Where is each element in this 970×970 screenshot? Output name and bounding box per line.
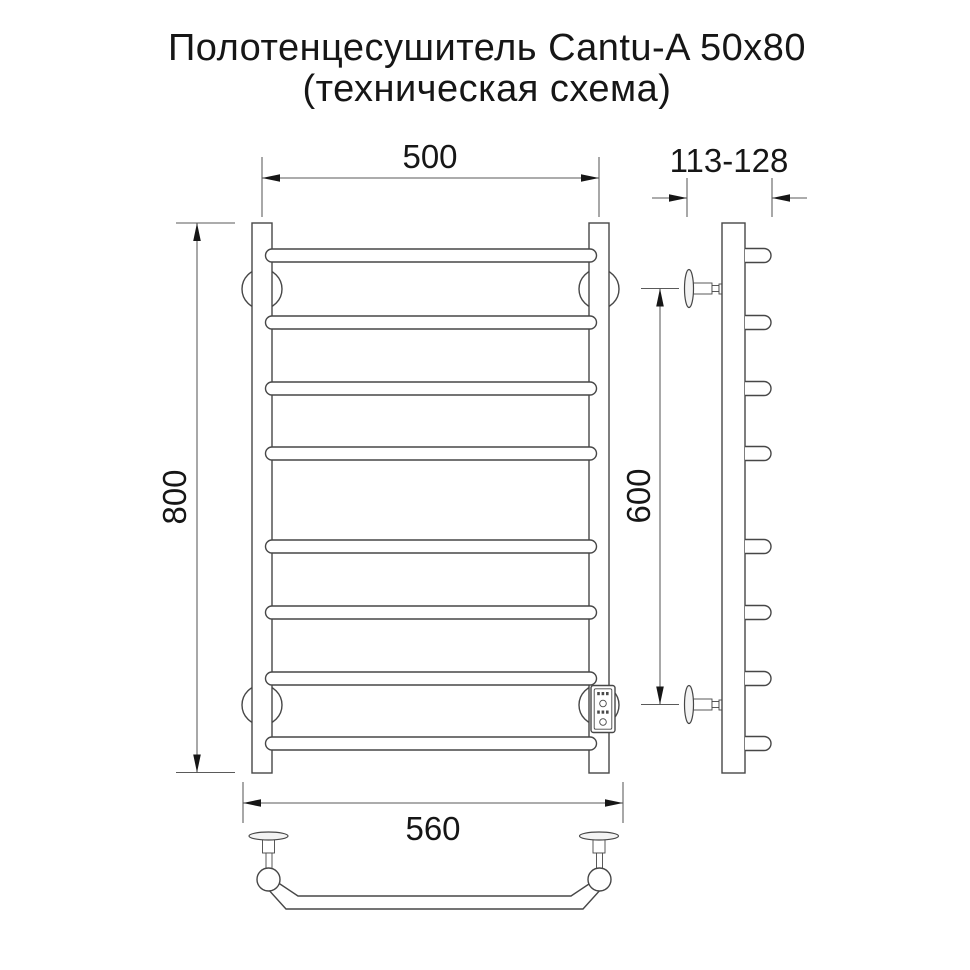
drawing-title: Полотенцесушитель Cantu-A 50x80 (техниче… [168,27,806,110]
rung-5 [266,540,597,553]
rung-end-4 [745,447,771,461]
power-button-icon [600,700,607,707]
rung-8 [266,737,597,750]
rung-end-1 [745,249,771,263]
mode-button-icon [600,719,607,726]
dim-label-height: 800 [156,469,193,524]
rung-2 [266,316,597,329]
rung-3 [266,382,597,395]
front-view [242,223,619,773]
wall-fastener-bottom [685,686,724,724]
wall-flange-top [685,270,694,308]
rung-end-8 [745,737,771,751]
technical-drawing: Полотенцесушитель Cantu-A 50x80 (техниче… [0,0,970,970]
rung-end-3 [745,382,771,396]
dim-label-mount-height: 600 [620,468,657,523]
rung-end-6 [745,606,771,620]
dim-mount-height: 600 [620,289,679,705]
rung-1 [266,249,597,262]
rung-end-5 [745,540,771,554]
dim-width-bottom: 560 [243,782,623,847]
technical-drawing-page: Полотенцесушитель Cantu-A 50x80 (техниче… [0,0,970,970]
rung-end-7 [745,672,771,686]
ball-joint-right [588,868,611,891]
dim-label-width-bottom: 560 [405,810,460,847]
wall-flange-plan-right [580,832,619,840]
wall-fastener-top [685,270,724,308]
ball-joint-left [257,868,280,891]
side-view [685,223,772,773]
dim-label-mount-depth: 113-128 [670,142,789,179]
wall-flange-plan-left [249,832,288,840]
control-panel [591,686,615,733]
dim-label-width-top: 500 [402,138,457,175]
panel-label-marks-bottom [597,711,608,714]
wall-fastener-plan-right [580,832,619,891]
panel-label-marks-top [597,692,608,695]
dim-width-top: 500 [262,138,599,217]
dim-height: 800 [156,223,235,773]
wall-fastener-plan-left [249,832,288,891]
title-line-2: (техническая схема) [303,68,672,110]
dim-mount-depth: 113-128 [652,142,807,217]
rung-6 [266,606,597,619]
wall-flange-bottom [685,686,694,724]
crossbar-profile [267,882,602,909]
rung-4 [266,447,597,460]
title-line-1: Полотенцесушитель Cantu-A 50x80 [168,27,806,69]
side-post [722,223,745,773]
left-post [252,223,272,773]
rung-end-2 [745,316,771,330]
rung-7 [266,672,597,685]
